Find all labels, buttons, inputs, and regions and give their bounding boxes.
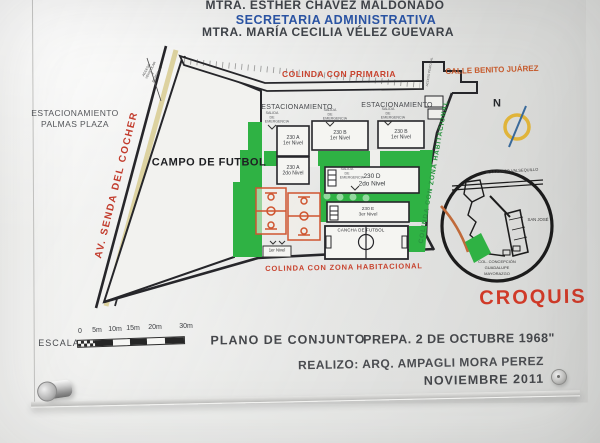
- building-230b-1er: 230 B 1er Nivel: [330, 130, 350, 142]
- campo-futbol-label: CAMPO DE FUTBOL: [152, 157, 266, 170]
- scale-tick-20m: 20m: [148, 324, 162, 332]
- scale-segment: [147, 338, 165, 345]
- building-level: 1er Nivel: [283, 141, 303, 147]
- building-230b-1er-east: 230 B 1er Nivel: [391, 129, 411, 141]
- building-level: 1er Nivel: [391, 135, 411, 141]
- building-230e-3er: 230 E 3er Nivel: [359, 207, 378, 218]
- building-230a-2do: 230 A 2do Nivel: [282, 165, 303, 177]
- building-level: 1er Nivel: [330, 136, 350, 142]
- colinda-primaria-label: COLINDA CON PRIMARIA: [282, 70, 396, 80]
- building-level: 2do Nivel: [359, 180, 386, 187]
- site-plan-plaque-photo: MTRA. ESTHER CHAVEZ MALDONADO SECRETARIA…: [0, 0, 600, 443]
- court-level-label: 1er Nivel: [269, 249, 286, 254]
- inset-colonia-label-2: GUADALUPE: [485, 267, 510, 272]
- scale-tick-5m: 5m: [92, 327, 102, 335]
- scale-segment: [78, 340, 95, 347]
- salida-emergencia-label-4: SALIDA DE EMERGENCIA: [340, 168, 354, 180]
- building-id: 230 D: [359, 173, 386, 180]
- building-230a-1er: 230 A 1er Nivel: [283, 135, 303, 147]
- salida-emergencia-label-1: SALIDA DE EMERGENCIA: [265, 112, 279, 124]
- scale-tick-15m: 15m: [126, 325, 140, 333]
- scale-tick-30m: 30m: [179, 323, 193, 331]
- estacionamiento-label-2: ESTACIONAMIENTO: [361, 102, 433, 110]
- salida-emergencia-label-2: SALIDA DE EMERGENCIA: [323, 109, 337, 121]
- scale-tick-0: 0: [78, 328, 82, 336]
- campo-futbol-parcel: [104, 59, 261, 302]
- scale-tick-10m: 10m: [108, 326, 122, 334]
- date-line: NOVIEMBRE 2011: [424, 372, 545, 388]
- building-230d-2do: 230 D 2do Nivel: [359, 173, 386, 188]
- palmas-plaza-parking-label-2: PALMAS PLAZA: [41, 120, 109, 130]
- croquis-title: CROQUIS: [479, 286, 587, 311]
- compass-n-label: N: [493, 98, 501, 111]
- building-level: 2do Nivel: [282, 171, 303, 177]
- basketball-courts: [256, 188, 320, 240]
- salida-emergencia-label-3: SALIDA DE EMERGENCIA: [381, 108, 395, 120]
- header-line-3: MTRA. MARÍA CECILIA VÉLEZ GUEVARA: [202, 26, 454, 40]
- scale-segment: [113, 339, 130, 346]
- scale-segment: [165, 337, 184, 344]
- inset-san-jose-label: SAN JOSÉ: [527, 219, 548, 224]
- compass-icon: [505, 106, 529, 147]
- inset-colonia-label-1: COL. CONCEPCIÓN: [478, 261, 516, 266]
- scale-segment: [130, 338, 147, 345]
- header-line-1: MTRA. ESTHER CHAVEZ MALDONADO: [206, 0, 445, 13]
- plan-title: PLANO DE CONJUNTO: [210, 332, 365, 348]
- inset-colonia-label-3: MAYORAZGO: [484, 273, 510, 278]
- scale-segment: [95, 340, 113, 347]
- palmas-plaza-parking-label: ESTACIONAMIENTO: [31, 109, 118, 119]
- school-title: PREPA. 2 DE OCTUBRE 1968": [363, 331, 555, 347]
- standoff-screw-right: [551, 369, 567, 385]
- building-level: 3er Nivel: [359, 212, 378, 217]
- cancha-futbol-label: CANCHA DE FUTBOL: [338, 229, 385, 234]
- escala-label: ESCALA: [38, 338, 80, 348]
